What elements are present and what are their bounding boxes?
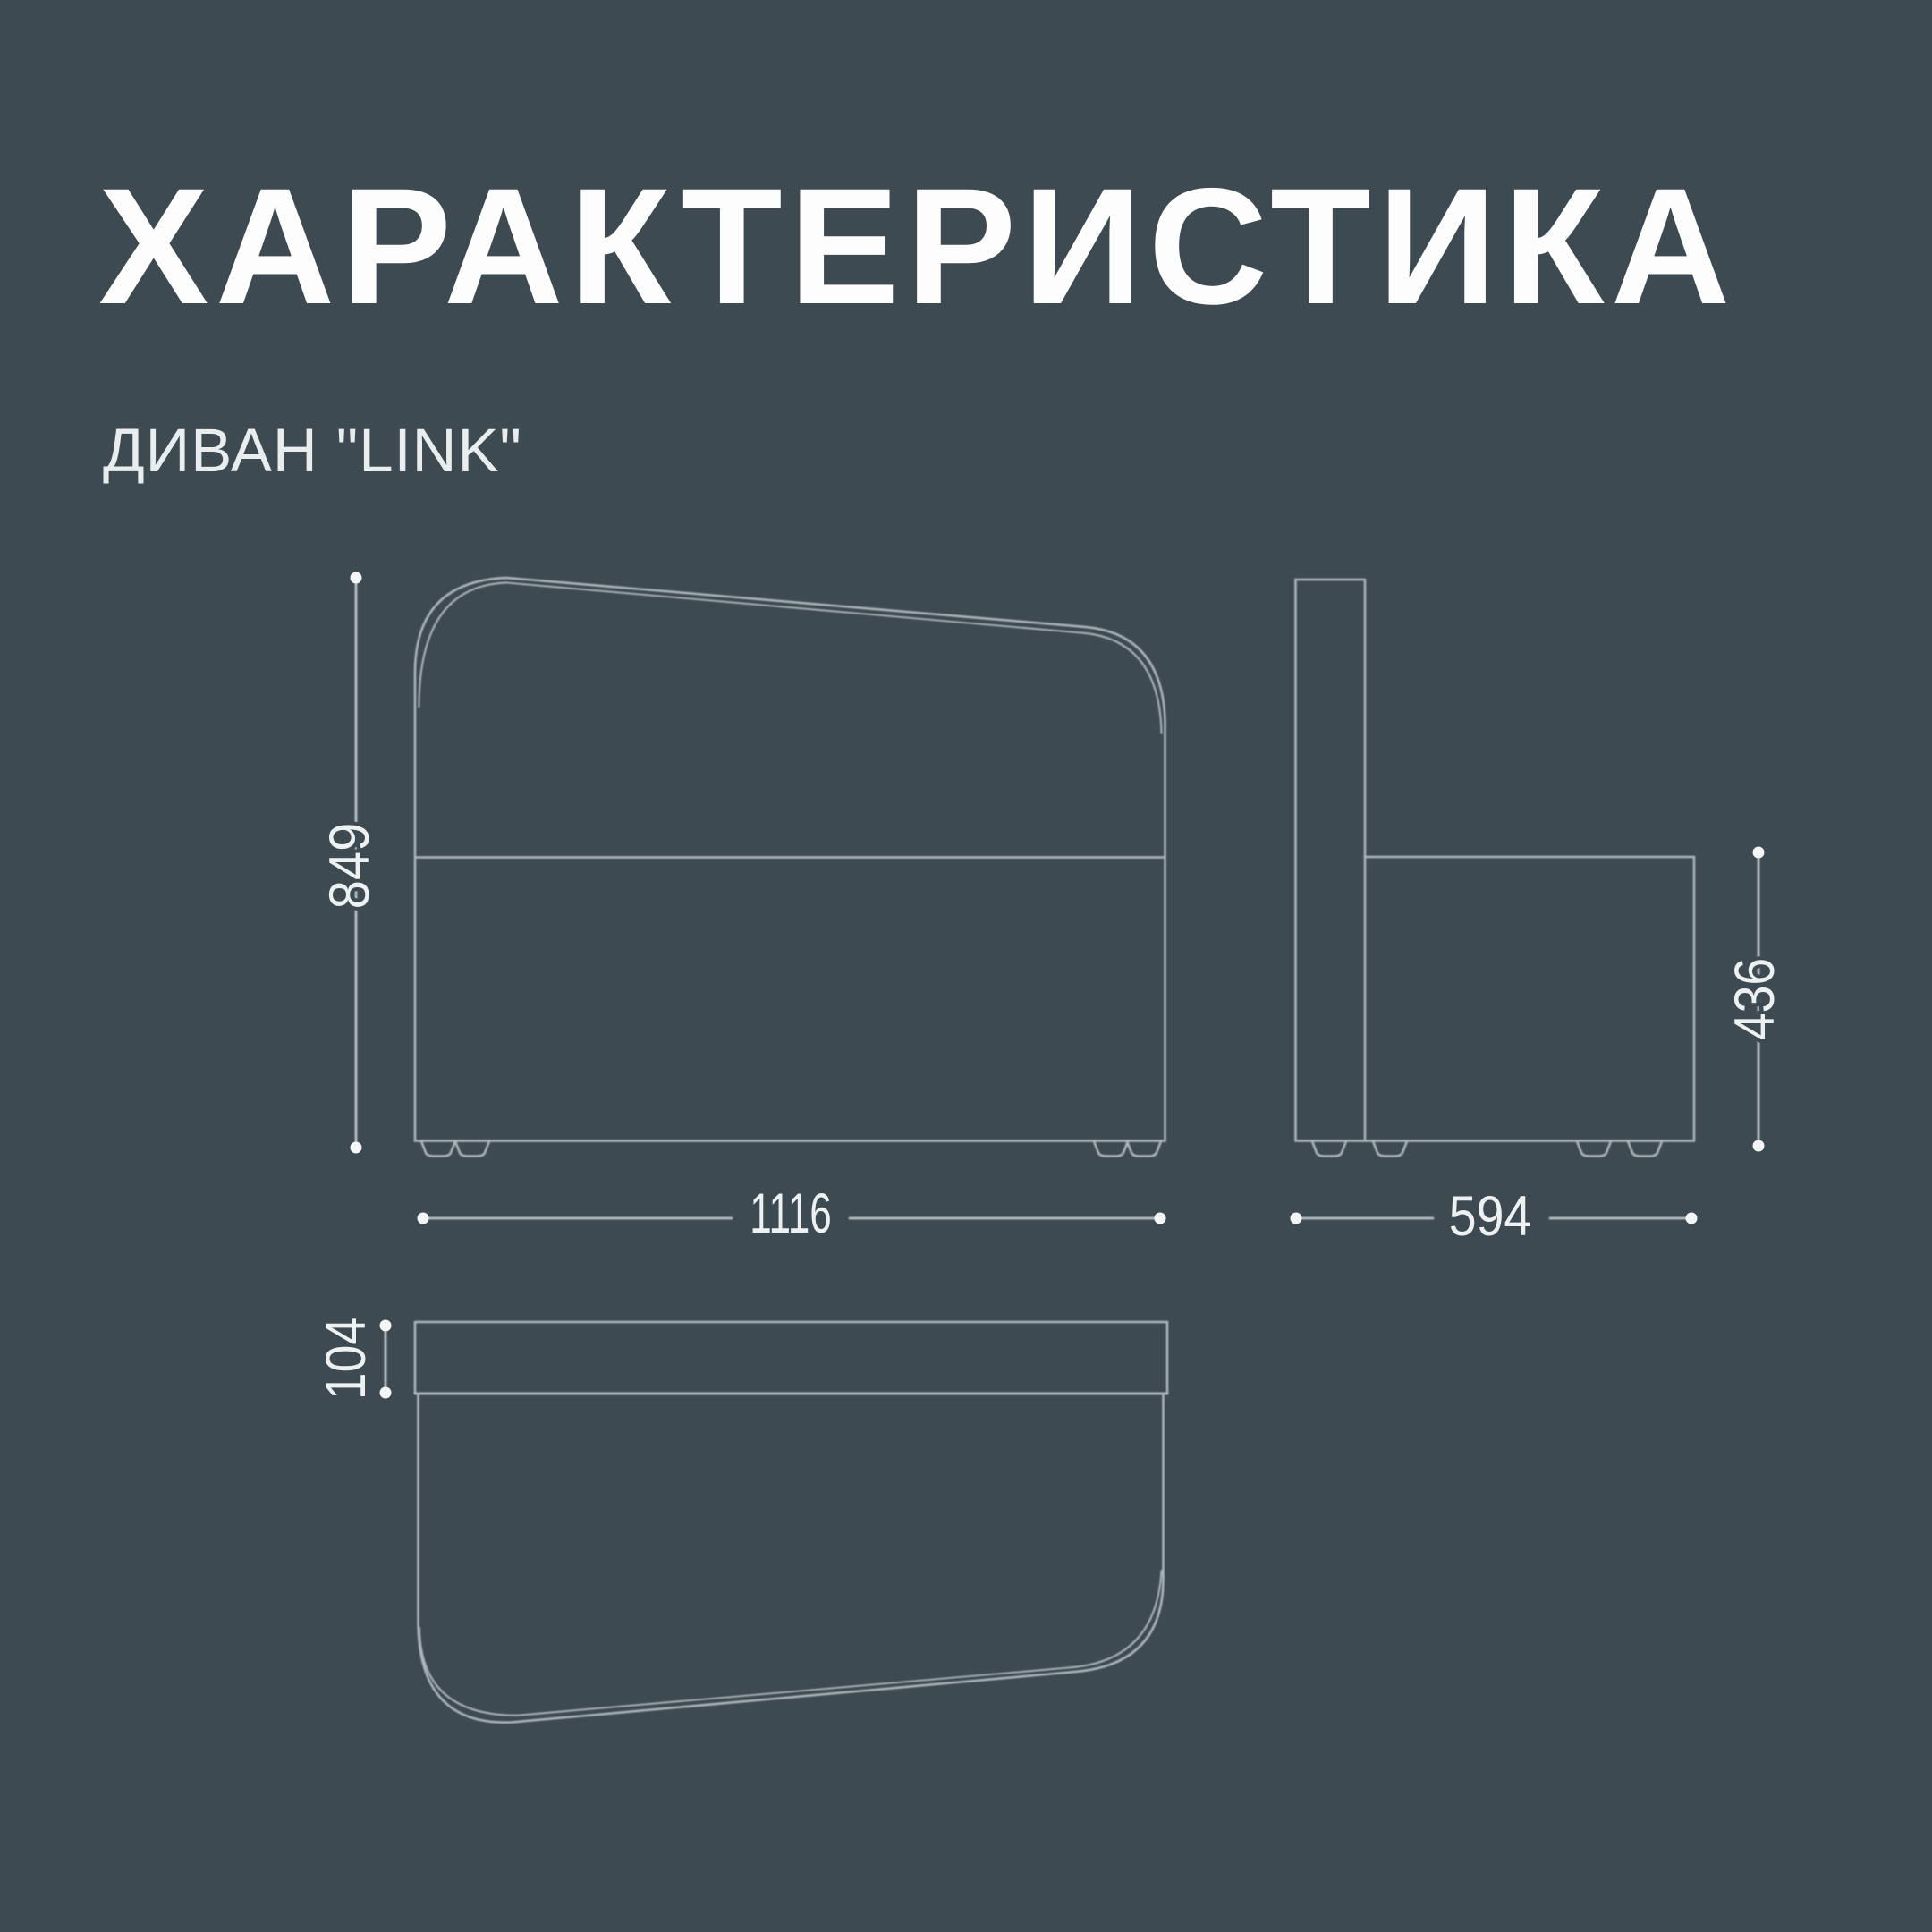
svg-text:436: 436	[1723, 958, 1786, 1040]
svg-text:849: 849	[318, 823, 381, 910]
svg-text:ДИВАН "LINK": ДИВАН "LINK"	[103, 416, 522, 485]
svg-text:1116: 1116	[750, 1182, 832, 1245]
svg-text:104: 104	[314, 1318, 377, 1400]
svg-text:ХАРАКТЕРИСТИКА: ХАРАКТЕРИСТИКА	[98, 155, 1737, 339]
svg-text:594: 594	[1449, 1184, 1531, 1248]
